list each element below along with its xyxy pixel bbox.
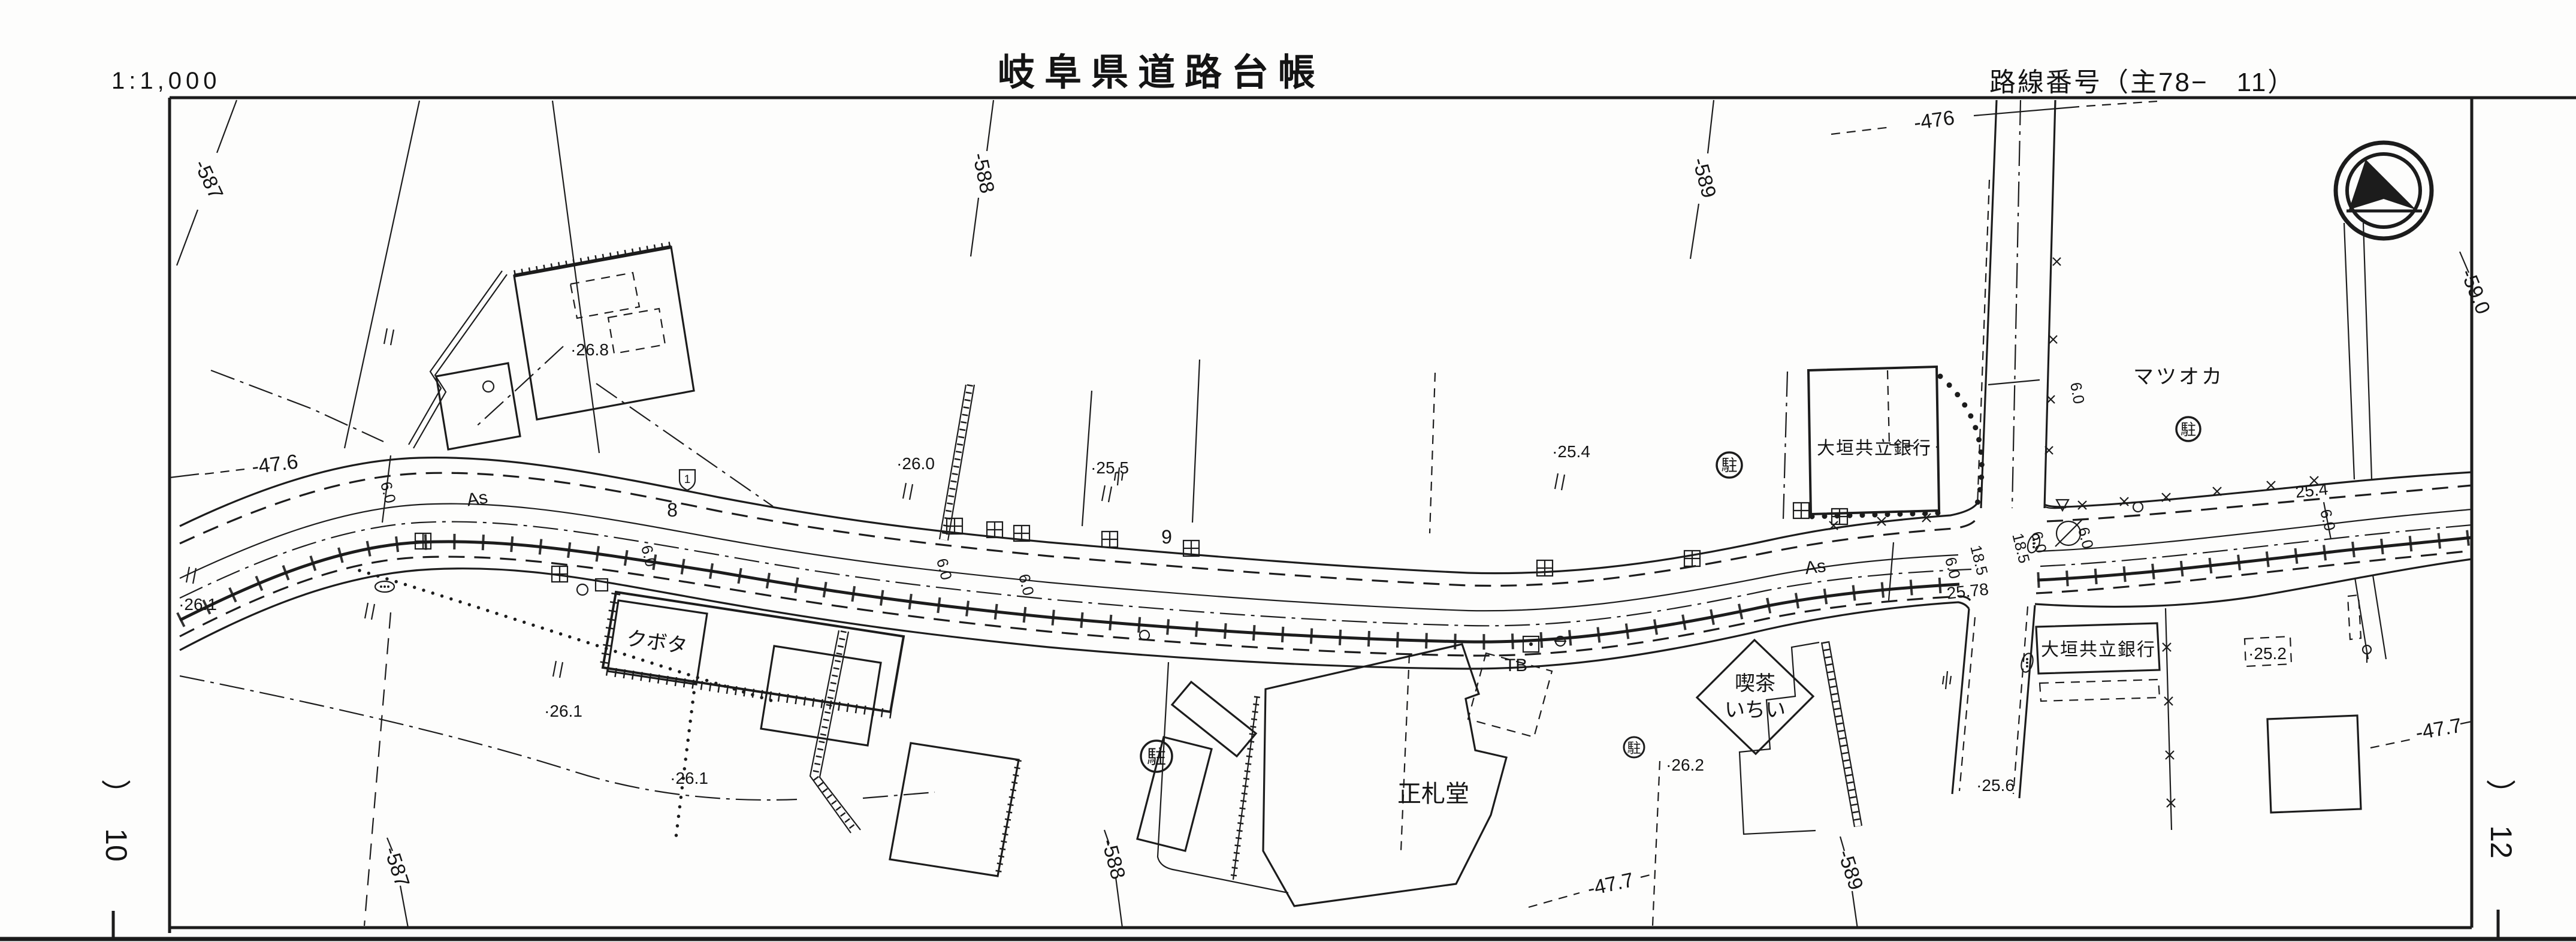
buildings: クボタ 正札堂 TB 喫茶 いちい 大垣共立銀行 大垣共立銀行 マツオカ [436,244,2361,906]
grid-label-588-bottom: -588 [1097,837,1130,882]
elev-26-0: ·26.0 [896,454,935,473]
building-kissa-label-1: 喫茶 [1735,672,1775,695]
elev-25-2: ·25.2 [2248,644,2287,663]
elev-26-1-c: ·26.1 [670,769,708,787]
grid-label-587-top: -587 [189,156,227,203]
elev-25-6: ·25.6 [1976,776,2015,795]
building-matsuoka-label: マツオカ [2133,366,2224,388]
building-bank1-label: 大垣共立銀行 [1817,439,1932,458]
parking-symbol-3: 駐 [1722,457,1738,475]
pavement-label-as-1: As [466,488,490,511]
grid-label-588-top: -588 [968,151,998,195]
station-label-9: 9 [1161,526,1172,548]
building-bank2-label: 大垣共立銀行 [2041,640,2156,660]
kilopost-number: 1 [684,473,691,486]
building-kubota-label: クボタ [625,627,688,658]
pavement-label-as-2: As [1804,556,1827,578]
side-road-south [1952,605,2035,798]
dim-6-0-d: 6.0 [1015,572,1038,597]
road-register-sheet: 1:1,000 岐阜県道路台帳 路線番号（主78− 11） ） 10 ） 12 … [0,0,2576,942]
dim-6-0-c: 6.0 [933,557,956,582]
drainage-channel [810,385,974,833]
grid-label-589-bottom: -589 [1833,847,1867,892]
grid-labels: -587 -588 -589 -476 -59.0 -47.6 -47.7 -4… [170,100,2495,929]
page-title: 岐阜県道路台帳 [998,52,1325,93]
catch-basin-symbols [415,503,1847,582]
right-sheet-number: 12 [2484,825,2518,859]
grass-marks [1115,467,1951,689]
grid-label-590-right: -59.0 [2456,266,2495,318]
right-sheet-bracket: ） [2483,779,2517,809]
elev-26-1-a: ·26.1 [179,595,217,614]
map-scale: 1:1,000 [111,68,221,94]
parking-symbol-2: 駐 [1627,740,1641,756]
header: 1:1,000 岐阜県道路台帳 路線番号（主78− 11） [111,52,2296,97]
building-right-end [2267,715,2361,813]
grid-label-476-left: -47.6 [250,450,300,478]
building-parking-1 [1172,682,1256,756]
dim-6-0-e: 6.0 [1941,555,1964,581]
dim-6-0-right: 6.0 [2317,508,2339,533]
station-label-8: 8 [667,499,678,521]
elev-26-8: ·26.8 [570,340,609,359]
dim-6-0-a: 6.0 [377,480,400,505]
corner-triangle-mark [2056,500,2068,511]
left-sheet-number: 10 [99,828,133,862]
grid-label-477-bottom: -47.7 [1586,868,1636,900]
dim-6-0-b: 6.0 [638,544,660,569]
well-symbol [483,381,494,392]
benchmark-label: TB [1505,656,1527,675]
field-marks [186,328,1565,678]
building-kissa-ichii [1697,640,1813,754]
side-road-north [1977,100,2068,511]
side-road-dim-line [1988,380,2040,385]
map-frame [0,98,2576,939]
elev-25-78: 25.78 [1946,579,1989,602]
adjacent-sheet-refs: ） 10 ） 12 [98,779,2518,940]
building-nw-small [436,363,520,449]
route-number: 路線番号（主78− 11） [1989,68,2296,97]
building-nw-dashed-2 [608,309,665,354]
parking-symbol-4: 駐 [2181,421,2196,439]
crossing-lane-east [2344,223,2386,663]
dim-6-0-g: 6.0 [2074,526,2097,551]
grid-label-476-top: -476 [1913,106,1956,134]
elev-25-4-right: 25.4 [2294,479,2329,502]
left-sheet-bracket: ） [98,779,132,809]
dim-6-0-sideroad: 6.0 [2067,381,2088,405]
elev-26-2: ·26.2 [1666,756,1704,774]
parking-symbol-1: 駐 [1147,746,1166,768]
north-arrow-icon [2336,143,2432,238]
building-shosatsudo [1263,644,1506,906]
elev-25-4-mid: ·25.4 [1552,442,1590,461]
main-road [180,458,2472,669]
building-shosatsudo-label: 正札堂 [1397,781,1469,807]
dim-18-5-a: 18.5 [1967,544,1991,577]
building-kissa-label-2: いちい [1725,699,1786,721]
grid-label-587-bottom: -587 [379,844,413,889]
elev-25-5: ·25.5 [1091,458,1129,477]
elev-26-1-b: ·26.1 [544,702,582,720]
grid-label-589-top: -589 [1688,155,1720,201]
grid-label-477-right: -47.7 [2414,714,2463,745]
building-nw-large [514,247,694,419]
